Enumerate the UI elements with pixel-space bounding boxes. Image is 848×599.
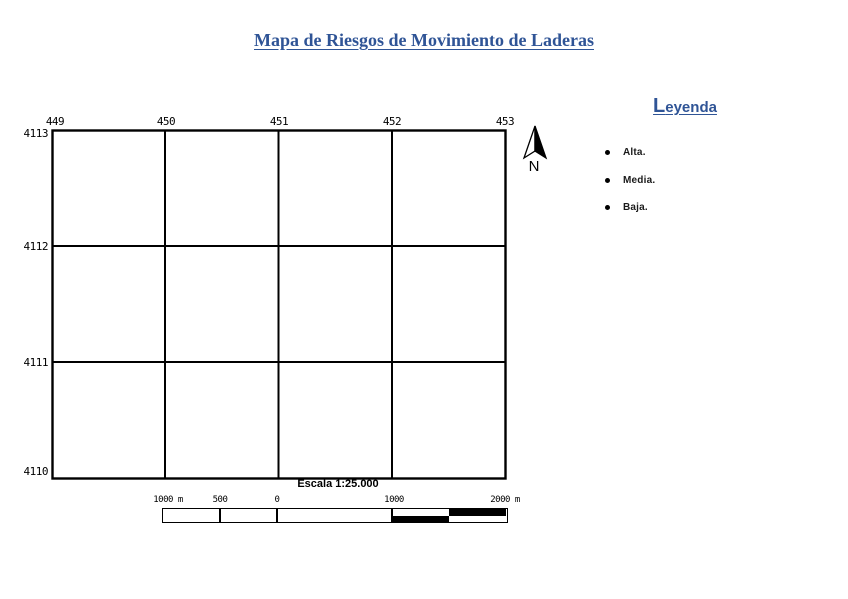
y-axis-label: 4113 (8, 127, 48, 140)
scale-bar-divider (276, 509, 278, 522)
scale-bar (162, 508, 508, 523)
legend-item-label: Baja. (623, 202, 648, 213)
scalebar-label: 1000 m (153, 495, 183, 505)
x-axis-label: 451 (270, 115, 288, 128)
x-axis-label: 450 (157, 115, 175, 128)
scale-bar-divider (219, 509, 221, 522)
x-axis-label: 449 (46, 115, 64, 128)
map-grid (51, 129, 508, 481)
x-axis-label: 453 (496, 115, 514, 128)
x-axis-label: 452 (383, 115, 401, 128)
y-axis-label: 4112 (8, 240, 48, 253)
scalebar-label: 500 (213, 495, 228, 505)
bullet-icon (605, 150, 610, 155)
scale-bar-segment-top-black (449, 509, 506, 516)
scalebar-label: 1000 (384, 495, 404, 505)
scalebar-label: 0 (275, 495, 280, 505)
legend-title: Leyenda (560, 95, 810, 118)
scale-caption: Escala 1:25.000 (297, 478, 378, 490)
legend-item: Media. (605, 175, 655, 186)
y-axis-label: 4110 (8, 465, 48, 478)
legend-title-initial: L (653, 95, 665, 117)
legend-item: Alta. (605, 147, 646, 158)
legend-title-rest: eyenda (665, 99, 717, 116)
legend-item-label: Alta. (623, 147, 646, 158)
page-title: Mapa de Riesgos de Movimiento de Laderas (0, 30, 848, 51)
y-axis-label: 4111 (8, 356, 48, 369)
north-arrow-icon (520, 125, 550, 161)
legend-item: Baja. (605, 202, 648, 213)
document-page: Mapa de Riesgos de Movimiento de Laderas… (0, 0, 848, 599)
legend-item-label: Media. (623, 175, 655, 186)
bullet-icon (605, 205, 610, 210)
scalebar-label: 2000 m (490, 495, 520, 505)
bullet-icon (605, 178, 610, 183)
north-label: N (519, 158, 549, 175)
scale-bar-segment-bottom-black (391, 516, 449, 523)
